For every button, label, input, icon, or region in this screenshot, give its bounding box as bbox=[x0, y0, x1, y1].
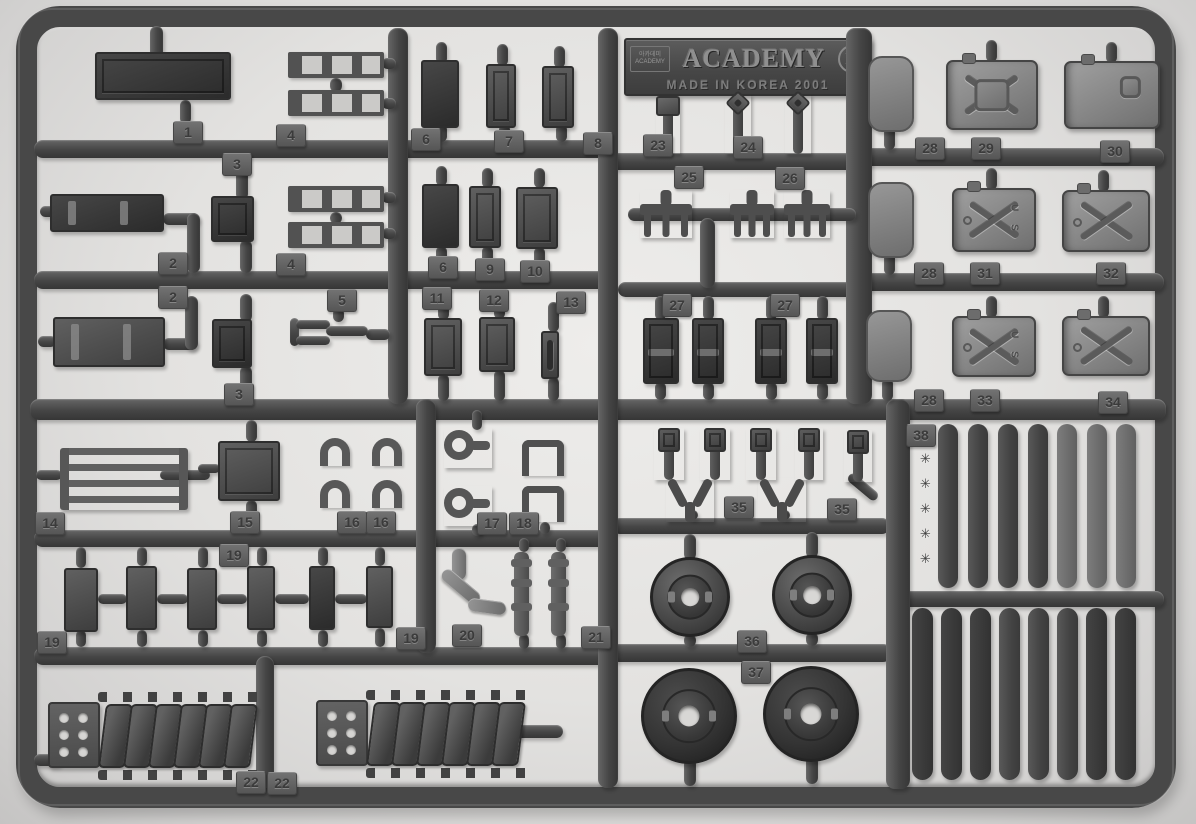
part-number-tag: 4 bbox=[276, 253, 306, 276]
jerry-can bbox=[946, 60, 1038, 130]
pin-head bbox=[798, 428, 820, 452]
fork-part bbox=[730, 190, 774, 238]
can-dot bbox=[963, 343, 972, 352]
runner-stub bbox=[482, 168, 493, 188]
molded-part-cushion bbox=[868, 56, 914, 132]
molded-part-box bbox=[366, 566, 393, 628]
runner-stub bbox=[519, 538, 529, 552]
part-number-tag: 9 bbox=[475, 258, 505, 281]
part-number-tag: 23 bbox=[643, 134, 673, 157]
fork-prong bbox=[763, 213, 770, 237]
part-number-tag: 18 bbox=[509, 512, 539, 535]
runner-stub bbox=[366, 329, 390, 340]
runner-stub bbox=[257, 630, 267, 647]
brand-korean-line: 아카데미 bbox=[639, 52, 661, 59]
runner-stub bbox=[519, 634, 529, 649]
fork-prong bbox=[804, 213, 811, 237]
plate-hole bbox=[78, 730, 88, 740]
track-teeth bbox=[366, 768, 528, 778]
molded-part-slat bbox=[1057, 424, 1077, 588]
part-number-tag: 3 bbox=[224, 383, 254, 406]
molded-part-box bbox=[755, 318, 787, 384]
molded-part-slat bbox=[912, 608, 933, 780]
runner-stub bbox=[655, 382, 666, 400]
pin-head bbox=[658, 428, 680, 452]
runner-stub bbox=[556, 538, 566, 552]
part-number-tag: 19 bbox=[219, 544, 249, 567]
molded-part-slat bbox=[1115, 608, 1136, 780]
can-dot bbox=[1073, 343, 1082, 352]
molded-part-slat bbox=[1116, 424, 1136, 588]
part-number-tag: 28 bbox=[914, 262, 944, 285]
pin-head bbox=[785, 90, 810, 115]
molded-part-slat bbox=[1057, 608, 1078, 780]
runner-stub bbox=[318, 547, 328, 566]
molded-part-box bbox=[643, 318, 679, 384]
part-number-tag: 27 bbox=[662, 294, 692, 317]
runner-stub bbox=[1098, 296, 1109, 318]
part-number-tag: 29 bbox=[971, 137, 1001, 160]
hub-slot bbox=[668, 592, 675, 603]
brand-name: ACADEMY bbox=[675, 44, 833, 74]
runner-stub bbox=[217, 594, 247, 604]
part-number-tag: 24 bbox=[733, 136, 763, 159]
plate-hole bbox=[59, 730, 69, 740]
runner-stub bbox=[986, 40, 997, 62]
pin-part bbox=[795, 428, 823, 480]
hub-slot bbox=[827, 590, 834, 601]
molded-part-slat bbox=[1087, 424, 1107, 588]
part-number-tag: 12 bbox=[479, 289, 509, 312]
fork-prong bbox=[749, 213, 756, 237]
runner-stub bbox=[986, 296, 997, 318]
runner-stub bbox=[436, 166, 447, 186]
part-number-tag: 28 bbox=[915, 137, 945, 160]
runner-stub bbox=[240, 240, 252, 273]
runner-stub bbox=[382, 192, 396, 203]
molded-part-box bbox=[126, 566, 157, 630]
molded-part-box bbox=[422, 184, 459, 248]
jerry-can bbox=[1064, 61, 1160, 129]
molded-part-box bbox=[187, 568, 217, 630]
u-bracket bbox=[522, 440, 564, 476]
runner-stub bbox=[703, 296, 714, 320]
pin-head bbox=[656, 96, 680, 116]
runner-stub bbox=[198, 464, 220, 473]
runner-stub bbox=[137, 547, 147, 566]
part-number-tag: 8 bbox=[583, 132, 613, 155]
part-number-tag: 35 bbox=[724, 496, 754, 519]
molded-part-box bbox=[516, 187, 558, 249]
jerry-can bbox=[1062, 190, 1150, 252]
runner-stub bbox=[548, 377, 559, 401]
runner-stub bbox=[375, 628, 385, 647]
molded-part-box bbox=[212, 319, 252, 368]
road-wheel bbox=[772, 555, 852, 635]
road-wheel bbox=[641, 668, 737, 764]
molded-part-box bbox=[541, 331, 559, 379]
runner-stub bbox=[198, 630, 208, 647]
sprue-photo: 아카데미 ACADEMY ACADEMY H MADE IN KOREA 200… bbox=[0, 0, 1196, 824]
runner-stub bbox=[554, 46, 565, 68]
track-end-plate bbox=[48, 702, 100, 768]
runner bbox=[34, 140, 612, 158]
molded-part-box bbox=[95, 52, 231, 100]
pin-head bbox=[847, 430, 869, 454]
can-us-marking: U S bbox=[1009, 204, 1020, 236]
track-teeth bbox=[366, 690, 528, 700]
can-dot bbox=[963, 216, 972, 225]
can-spout bbox=[962, 53, 976, 64]
runner-stub bbox=[98, 594, 127, 604]
runner bbox=[700, 218, 715, 288]
suspension-yoke bbox=[666, 478, 714, 522]
molded-part-grille bbox=[288, 52, 384, 78]
fork-prong bbox=[681, 213, 688, 237]
road-wheel bbox=[650, 557, 730, 637]
can-spout bbox=[967, 181, 981, 192]
part-number-tag: 7 bbox=[494, 130, 524, 153]
molded-part-grille bbox=[288, 186, 384, 212]
part-number-tag: 2 bbox=[158, 286, 188, 309]
track-teeth bbox=[98, 692, 260, 702]
runner-stub bbox=[382, 58, 396, 69]
pin-head bbox=[704, 428, 726, 452]
part-number-tag: 25 bbox=[674, 166, 704, 189]
part-number-tag: 3 bbox=[222, 153, 252, 176]
runner-stub bbox=[198, 547, 208, 568]
part-number-tag: 5 bbox=[327, 289, 357, 312]
molded-part-slat bbox=[968, 424, 988, 588]
tow-loop bbox=[444, 428, 492, 468]
molded-part-box bbox=[424, 318, 462, 376]
pin-part bbox=[746, 428, 776, 480]
fork-part bbox=[640, 190, 692, 238]
molded-part-grille bbox=[288, 90, 384, 116]
runner-stub bbox=[540, 522, 550, 534]
plate-hole bbox=[327, 728, 337, 738]
brand-korean-sub: ACADEMY bbox=[635, 59, 665, 66]
plate-hole bbox=[346, 745, 356, 755]
part-number-tag: 16 bbox=[366, 511, 396, 534]
hub-slot bbox=[662, 711, 669, 722]
rack-part bbox=[60, 448, 188, 510]
molded-part-box bbox=[50, 194, 164, 232]
road-wheel bbox=[763, 666, 859, 762]
part-number-tag: 19 bbox=[396, 627, 426, 650]
part-number-tag: 16 bbox=[337, 511, 367, 534]
runner-stub bbox=[36, 470, 62, 480]
runner bbox=[892, 591, 1164, 607]
runner bbox=[886, 399, 910, 789]
pin-head bbox=[725, 90, 750, 115]
pin-part bbox=[654, 428, 684, 480]
runner-stub bbox=[157, 594, 188, 604]
hub-slot bbox=[709, 711, 716, 722]
rod-part bbox=[551, 552, 566, 636]
brand-origin: MADE IN KOREA 2001 bbox=[626, 78, 870, 92]
plate-hole bbox=[327, 711, 337, 721]
jerry-can: U S bbox=[952, 188, 1036, 252]
part-number-tag: 33 bbox=[970, 389, 1000, 412]
sprocket-bit: ✳ bbox=[920, 552, 931, 567]
can-spout bbox=[1077, 309, 1091, 320]
plate-hole bbox=[327, 745, 337, 755]
axle-hole bbox=[678, 705, 699, 726]
runner-stub bbox=[240, 294, 252, 322]
runner-stub bbox=[275, 594, 309, 604]
part-number-tag: 22 bbox=[267, 772, 297, 795]
runner-stub bbox=[382, 98, 396, 109]
pin-part bbox=[785, 94, 811, 154]
can-recess bbox=[974, 79, 1009, 111]
part-number-tag: 19 bbox=[37, 631, 67, 654]
part-number-tag: 38 bbox=[906, 424, 936, 447]
part-number-tag: 26 bbox=[775, 167, 805, 190]
rod-part bbox=[514, 552, 529, 636]
molded-part-slat bbox=[1028, 608, 1049, 780]
hub-slot bbox=[790, 590, 797, 601]
fork-prong bbox=[663, 213, 670, 237]
track-end-plate bbox=[316, 700, 368, 766]
plate-hole bbox=[59, 747, 69, 757]
molded-part-box bbox=[806, 318, 838, 384]
sprocket-bit: ✳ bbox=[920, 477, 931, 492]
molded-part-cushion bbox=[866, 310, 912, 382]
plate-hole bbox=[78, 747, 88, 757]
fork-prong bbox=[819, 213, 826, 237]
sprocket-bit: ✳ bbox=[920, 527, 931, 542]
molded-part-slat bbox=[1086, 608, 1107, 780]
part-number-tag: 10 bbox=[520, 260, 550, 283]
runner-stub bbox=[497, 44, 508, 66]
bracket-part bbox=[326, 326, 368, 336]
molded-part-box bbox=[211, 196, 254, 242]
runner-stub bbox=[137, 630, 147, 647]
runner-stub bbox=[438, 374, 449, 401]
runner-stub bbox=[76, 630, 86, 647]
fork-prong bbox=[734, 213, 741, 237]
fork-prong bbox=[788, 213, 795, 237]
runner-stub bbox=[246, 420, 257, 442]
u-bracket bbox=[320, 480, 350, 508]
runner bbox=[34, 647, 612, 665]
runner-stub bbox=[76, 547, 86, 568]
molded-part-slat bbox=[970, 608, 991, 780]
pin-part bbox=[700, 428, 730, 480]
runner-stub bbox=[817, 382, 828, 400]
runner-stub bbox=[1106, 42, 1117, 63]
molded-part-box bbox=[479, 317, 515, 372]
runner-stub bbox=[335, 594, 367, 604]
plate-hole bbox=[59, 713, 69, 723]
fork-prong bbox=[644, 213, 651, 237]
loop-stem bbox=[470, 441, 490, 450]
sprocket-bit: ✳ bbox=[920, 452, 931, 467]
part-number-tag: 36 bbox=[737, 630, 767, 653]
molded-part-box bbox=[247, 566, 275, 630]
part-number-tag: 14 bbox=[35, 512, 65, 535]
axle-hole bbox=[803, 586, 821, 604]
hub-slot bbox=[705, 592, 712, 603]
runner-stub bbox=[382, 228, 396, 239]
can-spout bbox=[1081, 54, 1095, 65]
brand-korean-box: 아카데미 ACADEMY bbox=[630, 46, 670, 72]
part-number-tag: 21 bbox=[581, 626, 611, 649]
runner-stub bbox=[375, 547, 385, 566]
part-number-tag: 20 bbox=[452, 624, 482, 647]
molded-part-box bbox=[542, 66, 574, 128]
jerry-can bbox=[1062, 316, 1150, 376]
part-number-tag: 6 bbox=[411, 128, 441, 151]
runner-stub bbox=[534, 168, 545, 188]
molded-part-box bbox=[692, 318, 724, 384]
bracket-part bbox=[296, 320, 330, 329]
sprocket-bit: ✳ bbox=[920, 502, 931, 517]
part-number-tag: 13 bbox=[556, 291, 586, 314]
part-number-tag: 6 bbox=[428, 256, 458, 279]
molded-part-slat bbox=[998, 424, 1018, 588]
runner-stub bbox=[494, 370, 505, 401]
runner-stub bbox=[703, 382, 714, 400]
part-number-tag: 30 bbox=[1100, 140, 1130, 163]
runner bbox=[416, 399, 436, 653]
molded-part-box bbox=[421, 60, 459, 128]
molded-part-box bbox=[309, 566, 335, 630]
molded-part-box bbox=[486, 64, 516, 128]
runner-stub bbox=[318, 630, 328, 647]
molded-part-box bbox=[469, 186, 501, 248]
u-bracket bbox=[372, 438, 402, 466]
runner-stub bbox=[1098, 170, 1109, 192]
plate-hole bbox=[78, 713, 88, 723]
yoke-stem bbox=[685, 502, 695, 522]
part-number-tag: 31 bbox=[970, 262, 1000, 285]
plate-hole bbox=[346, 728, 356, 738]
part-number-tag: 1 bbox=[173, 121, 203, 144]
runner bbox=[388, 28, 408, 404]
molded-part-slat bbox=[1028, 424, 1048, 588]
can-spout bbox=[967, 309, 981, 320]
molded-part-slat bbox=[941, 608, 962, 780]
fork-part bbox=[784, 190, 830, 238]
suspension-yoke bbox=[758, 478, 806, 522]
runner-stub bbox=[257, 547, 267, 566]
molded-part-box bbox=[53, 317, 165, 367]
runner-stub bbox=[187, 213, 200, 273]
part-number-tag: 4 bbox=[276, 124, 306, 147]
part-number-tag: 27 bbox=[770, 294, 800, 317]
molded-part-grille bbox=[288, 222, 384, 248]
part-number-tag: 35 bbox=[827, 498, 857, 521]
part-number-tag: 2 bbox=[158, 252, 188, 275]
pin-part bbox=[844, 430, 872, 482]
runner-stub bbox=[986, 168, 997, 190]
runner-stub bbox=[817, 296, 828, 320]
runner-stub bbox=[472, 410, 482, 430]
molded-part-box bbox=[218, 441, 280, 501]
runner bbox=[256, 656, 274, 788]
can-emboss bbox=[1120, 76, 1140, 98]
u-bracket bbox=[320, 438, 350, 466]
molded-part-cushion bbox=[868, 182, 914, 258]
can-spout bbox=[1077, 183, 1091, 194]
molded-part-slat bbox=[999, 608, 1020, 780]
brand-plate: 아카데미 ACADEMY ACADEMY H MADE IN KOREA 200… bbox=[624, 38, 872, 96]
part-number-tag: 22 bbox=[236, 771, 266, 794]
molded-part-slat bbox=[938, 424, 958, 588]
u-bracket bbox=[372, 480, 402, 508]
part-number-tag: 15 bbox=[230, 511, 260, 534]
bracket-part bbox=[296, 336, 330, 345]
jerry-can: U S bbox=[952, 316, 1036, 377]
hub-slot bbox=[784, 709, 791, 720]
loop-stem bbox=[470, 499, 490, 508]
can-dot bbox=[1073, 218, 1082, 227]
molded-part-box bbox=[64, 568, 98, 632]
part-number-tag: 17 bbox=[477, 512, 507, 535]
axle-hole bbox=[800, 703, 821, 724]
hub-slot bbox=[831, 709, 838, 720]
part-number-tag: 32 bbox=[1096, 262, 1126, 285]
plate-hole bbox=[346, 711, 356, 721]
runner-stub bbox=[556, 634, 566, 649]
runner-stub bbox=[766, 382, 777, 400]
axle-hole bbox=[681, 588, 699, 606]
yoke-stem bbox=[777, 502, 787, 522]
part-number-tag: 28 bbox=[914, 389, 944, 412]
can-us-marking: U S bbox=[1009, 331, 1020, 363]
runner bbox=[618, 282, 856, 297]
part-number-tag: 34 bbox=[1098, 391, 1128, 414]
pin-head bbox=[750, 428, 772, 452]
part-number-tag: 11 bbox=[422, 287, 452, 310]
part-number-tag: 37 bbox=[741, 661, 771, 684]
